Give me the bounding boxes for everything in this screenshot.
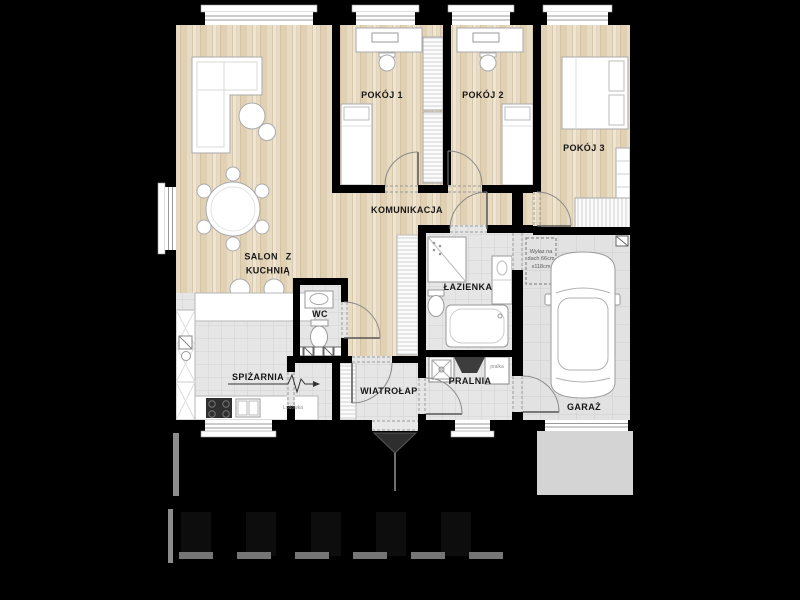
garage-door xyxy=(545,420,628,431)
fridge-label: Lodówka xyxy=(283,405,303,411)
room-label-wc: WC xyxy=(312,309,328,319)
hall-closet-symbol xyxy=(397,235,418,355)
window xyxy=(448,5,514,25)
kitchen-tall-cabinets-symbol xyxy=(176,310,195,420)
car-symbol xyxy=(545,252,620,398)
dresser-symbol xyxy=(616,148,630,198)
room-label-salon: SALON Z KUCHNIĄ xyxy=(244,251,291,278)
room-label-pralnia: PRALNIA xyxy=(449,376,492,386)
room-label-pokoj2: POKÓJ 2 xyxy=(462,90,504,100)
sink-symbol xyxy=(236,399,260,417)
window xyxy=(201,420,276,437)
roof-hatch-label: Wyłaz na dach 66cm x118cm xyxy=(526,249,556,271)
room-label-pokoj1: POKÓJ 1 xyxy=(361,90,403,100)
room-label-lazienka: ŁAZIENKA xyxy=(444,282,493,292)
window xyxy=(158,183,176,254)
washer-label: pralka xyxy=(490,364,504,370)
floor-plan: SALON Z KUCHNIĄ POKÓJ 1 POKÓJ 2 POKÓJ 3 … xyxy=(0,0,800,600)
room-label-pokoj3: POKÓJ 3 xyxy=(563,143,605,153)
wardrobe-symbol xyxy=(575,198,630,229)
vestibule-closet-symbol xyxy=(340,363,356,420)
room-label-komunikacja: KOMUNIKACJA xyxy=(371,205,443,215)
window xyxy=(352,5,419,25)
wardrobe-symbol xyxy=(423,112,443,183)
wardrobe-symbol xyxy=(423,37,443,110)
toilet-symbol xyxy=(311,326,328,348)
room-label-garaz: GARAŻ xyxy=(567,402,601,412)
room-label-wiatrolap: WIATROŁAP xyxy=(360,386,417,396)
room-label-spizarnia: SPIŻARNIA xyxy=(232,372,284,382)
driveway xyxy=(537,431,633,495)
window xyxy=(451,420,494,437)
toilet-symbol xyxy=(428,296,444,317)
window xyxy=(201,5,317,25)
window xyxy=(543,5,612,25)
